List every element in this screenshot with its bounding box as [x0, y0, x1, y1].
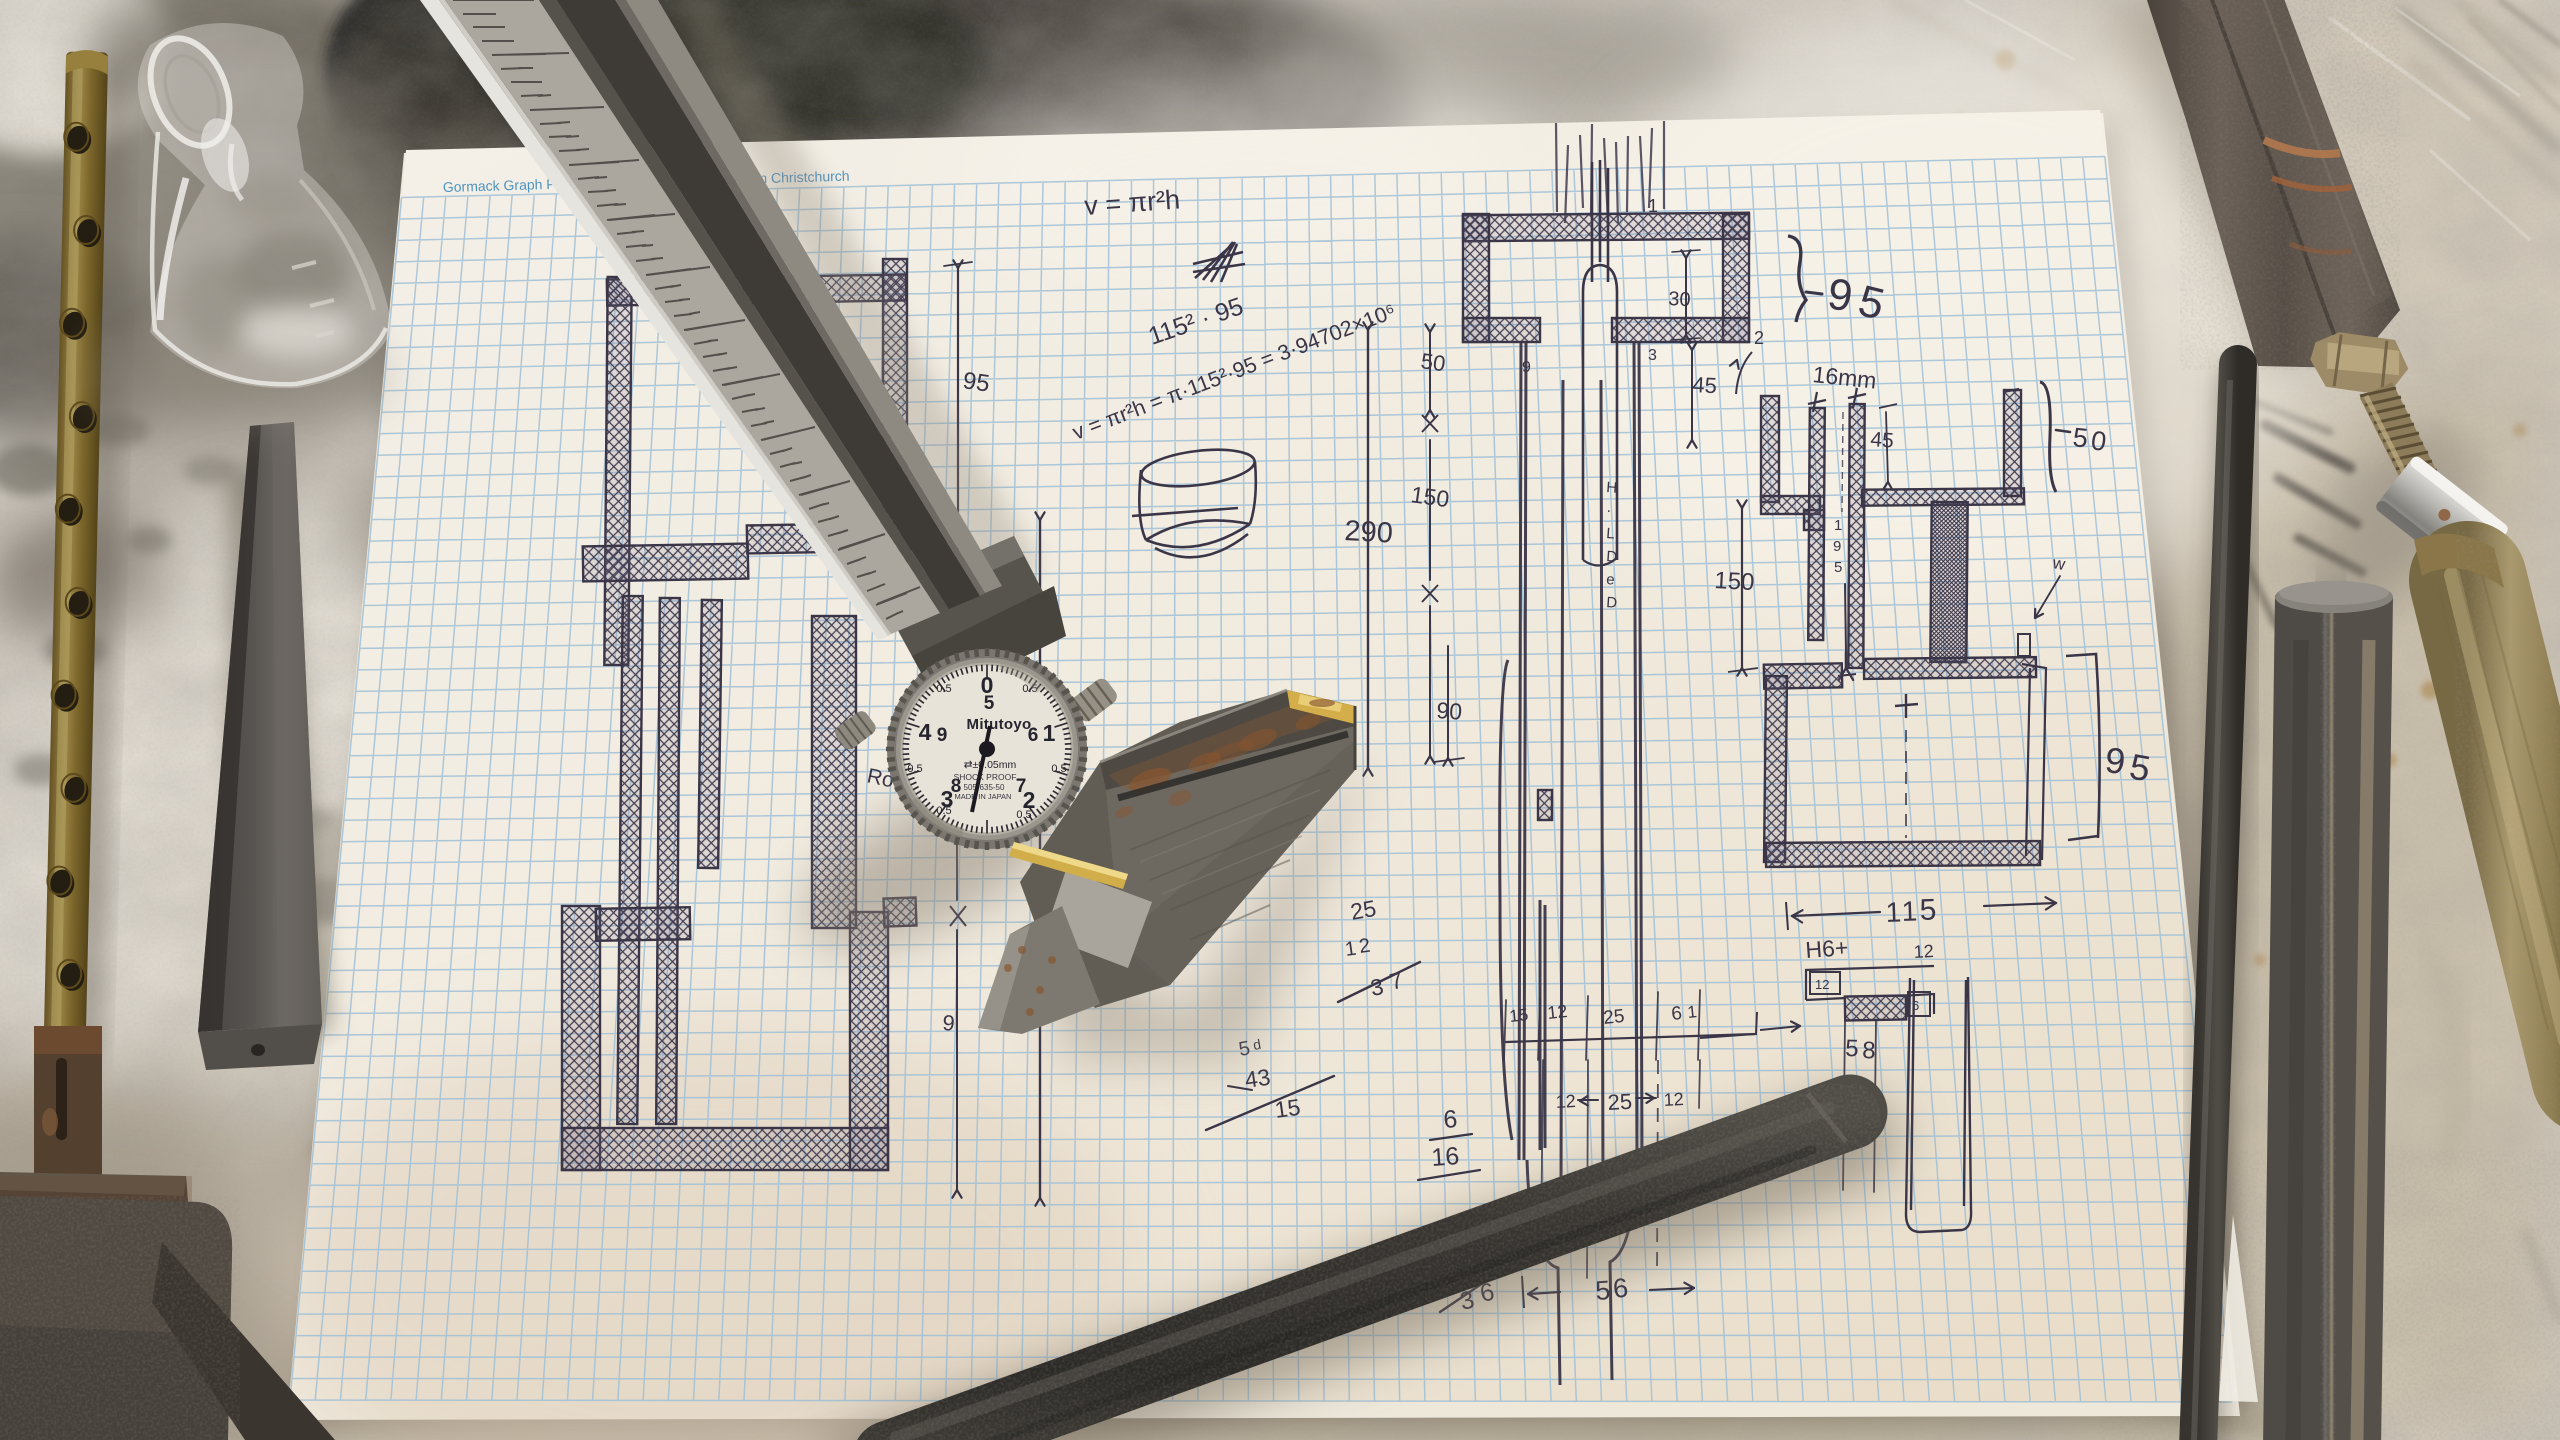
- svg-text:9: 9: [1833, 538, 1841, 555]
- svg-text:6: 6: [1670, 1003, 1683, 1025]
- svg-text:0.5: 0.5: [936, 683, 951, 695]
- svg-text:5: 5: [2071, 422, 2089, 453]
- svg-text:5: 5: [1919, 893, 1937, 927]
- svg-text:90: 90: [1436, 697, 1463, 725]
- svg-text:12: 12: [1913, 941, 1934, 962]
- svg-text:12: 12: [1555, 1091, 1576, 1112]
- svg-text:45: 45: [1692, 372, 1718, 398]
- svg-text:Mitutoyo: Mitutoyo: [967, 716, 1032, 733]
- svg-text:SHOCK PROOF: SHOCK PROOF: [954, 772, 1017, 782]
- svg-text:0.5: 0.5: [936, 805, 951, 817]
- svg-text:H: H: [1606, 479, 1618, 497]
- svg-text:25: 25: [1348, 895, 1378, 925]
- svg-text:2: 2: [1754, 328, 1764, 348]
- svg-text:4: 4: [919, 719, 932, 745]
- svg-text:⇄±0.05mm: ⇄±0.05mm: [964, 759, 1017, 771]
- svg-text:3: 3: [1648, 347, 1657, 364]
- svg-text:15: 15: [1273, 1094, 1302, 1123]
- svg-text:30: 30: [1668, 288, 1691, 311]
- svg-text:9: 9: [2103, 739, 2127, 782]
- svg-text:D: D: [1606, 594, 1618, 612]
- svg-text:9: 9: [942, 1010, 956, 1036]
- svg-text:6: 6: [1611, 1273, 1629, 1304]
- svg-text:1: 1: [1885, 896, 1902, 928]
- svg-text:1: 1: [1834, 517, 1842, 534]
- svg-text:9: 9: [1522, 359, 1531, 376]
- svg-text:505-635-50: 505-635-50: [964, 783, 1005, 792]
- svg-text:0.5: 0.5: [1051, 763, 1066, 775]
- svg-text:45: 45: [1870, 428, 1895, 453]
- svg-text:0.5: 0.5: [907, 763, 922, 775]
- svg-text:12: 12: [1663, 1089, 1684, 1110]
- svg-text:12: 12: [1815, 977, 1829, 992]
- svg-text:1: 1: [1686, 1002, 1697, 1022]
- svg-text:0.5: 0.5: [1016, 809, 1031, 821]
- svg-text:1: 1: [1648, 196, 1658, 216]
- svg-text:16: 16: [1430, 1142, 1460, 1172]
- svg-text:5: 5: [984, 693, 995, 714]
- svg-text:1: 1: [1901, 895, 1918, 927]
- svg-text:MADE IN JAPAN: MADE IN JAPAN: [955, 792, 1012, 801]
- svg-text:D: D: [1606, 548, 1618, 566]
- svg-text:H6+: H6+: [1805, 934, 1850, 963]
- svg-text:50: 50: [1419, 348, 1447, 376]
- svg-text:25: 25: [1602, 1006, 1625, 1029]
- svg-text:8: 8: [1862, 1037, 1876, 1064]
- svg-text:e: e: [1606, 571, 1616, 589]
- svg-text:1: 1: [1043, 720, 1056, 746]
- svg-text:12: 12: [1546, 1001, 1568, 1023]
- svg-text:15: 15: [1508, 1005, 1529, 1026]
- svg-text:5: 5: [1845, 1035, 1859, 1062]
- svg-text:95: 95: [961, 367, 991, 397]
- svg-text:L: L: [1606, 525, 1616, 543]
- svg-text:7: 7: [1016, 776, 1027, 797]
- svg-text:5: 5: [1834, 559, 1842, 576]
- svg-text:150: 150: [1714, 567, 1755, 596]
- svg-text:25: 25: [1607, 1089, 1633, 1115]
- svg-text:6: 6: [1442, 1105, 1458, 1134]
- svg-text:9: 9: [937, 725, 948, 746]
